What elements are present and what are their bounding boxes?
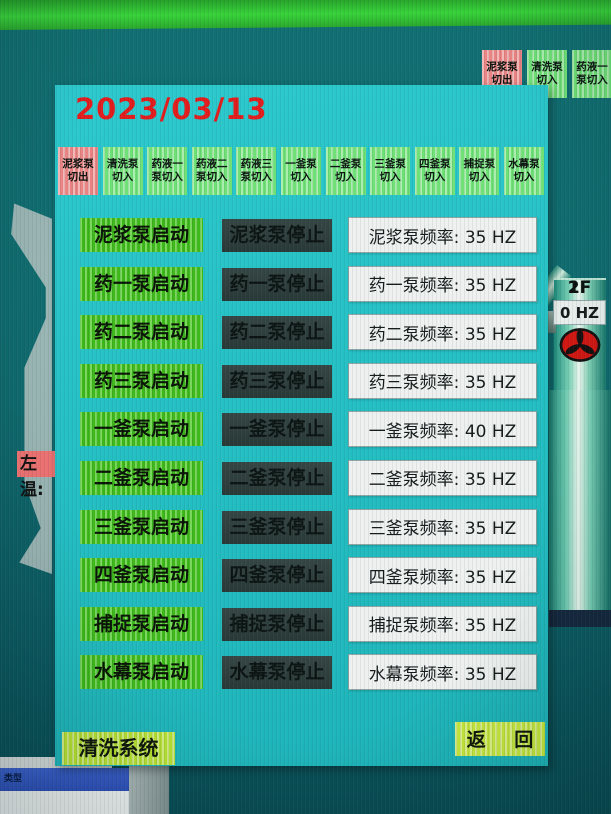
pump-stop-button[interactable]: 泥浆泵停止 xyxy=(222,219,332,252)
back-button[interactable]: 返 回 xyxy=(455,722,545,756)
pump-frequency-display: 四釜泵频率: 35 HZ xyxy=(348,557,537,593)
pump-stop-button[interactable]: 二釜泵停止 xyxy=(222,462,332,495)
pump-row: 捕捉泵启动 捕捉泵停止 捕捉泵频率: 35 HZ xyxy=(55,600,548,649)
pump-frequency-display: 捕捉泵频率: 35 HZ xyxy=(348,606,537,642)
pump-stop-button[interactable]: 水幕泵停止 xyxy=(222,656,332,689)
fan-unit: 2F 0 HZ xyxy=(548,278,611,363)
fan-floor-label: 2F xyxy=(568,278,591,298)
pump-frequency-display: 药三泵频率: 35 HZ xyxy=(348,363,537,399)
pump-switch-tab[interactable]: 四釜泵 切入 xyxy=(415,147,455,195)
pump-switch-tab[interactable]: 捕捉泵 切入 xyxy=(459,147,499,195)
pump-switch-tab[interactable]: 药液二 泵切入 xyxy=(192,147,232,195)
pump-stop-button[interactable]: 药一泵停止 xyxy=(222,268,332,301)
pump-stop-button[interactable]: 三釜泵停止 xyxy=(222,511,332,544)
fan-frequency-display: 0 HZ xyxy=(553,300,606,325)
exhaust-duct: 1F 0 HZ 2F 0 HZ xyxy=(548,278,611,628)
pump-stop-button[interactable]: 四釜泵停止 xyxy=(222,559,332,592)
pump-switch-tab[interactable]: 一釜泵 切入 xyxy=(281,147,321,195)
tab-label: 四釜泵 切入 xyxy=(419,158,451,183)
tab-label: 捕捉泵 切入 xyxy=(464,158,496,183)
pump-row: 二釜泵启动 二釜泵停止 二釜泵频率: 35 HZ xyxy=(55,454,548,503)
pump-stop-button[interactable]: 一釜泵停止 xyxy=(222,413,332,446)
pump-frequency-display: 药一泵频率: 35 HZ xyxy=(348,266,537,302)
pump-frequency-display: 泥浆泵频率: 35 HZ xyxy=(348,217,537,253)
pump-start-button[interactable]: 药三泵启动 xyxy=(80,364,203,398)
background-gray-band xyxy=(129,765,169,814)
tab-label: 二釜泵 切入 xyxy=(330,158,362,183)
tab-label: 药液二 泵切入 xyxy=(196,158,228,183)
pump-switch-tab[interactable]: 药液一 泵切入 xyxy=(147,147,187,195)
pump-control-panel: 2023/03/13 泥浆泵 切出 清洗泵 切入 药液一 泵切入 药液二 泵切入… xyxy=(55,85,548,766)
pump-start-button[interactable]: 四釜泵启动 xyxy=(80,558,203,592)
hmi-screen: 泥浆泵 切出 清洗泵 切入 药液一 泵切入 左温: 类型 1F 0 HZ xyxy=(0,0,611,814)
pump-frequency-display: 水幕泵频率: 35 HZ xyxy=(348,654,537,690)
pump-frequency-display: 药二泵频率: 35 HZ xyxy=(348,314,537,350)
pump-row: 药二泵启动 药二泵停止 药二泵频率: 35 HZ xyxy=(55,308,548,357)
pump-row: 三釜泵启动 三釜泵停止 三釜泵频率: 35 HZ xyxy=(55,503,548,552)
pump-switch-tab[interactable]: 清洗泵 切入 xyxy=(103,147,143,195)
pump-switch-tab[interactable]: 药液三 泵切入 xyxy=(236,147,276,195)
pump-stop-button[interactable]: 药三泵停止 xyxy=(222,365,332,398)
pump-row: 一釜泵启动 一釜泵停止 一釜泵频率: 40 HZ xyxy=(55,405,548,454)
date-display: 2023/03/13 xyxy=(75,92,268,126)
tab-label: 清洗泵 切入 xyxy=(107,158,139,183)
dialog-body xyxy=(0,791,129,814)
tab-label: 药液一 泵切入 xyxy=(576,61,608,86)
tab-label: 清洗泵 切入 xyxy=(531,61,563,86)
pump-frequency-display: 三釜泵频率: 35 HZ xyxy=(348,509,537,545)
tab-label: 一釜泵 切入 xyxy=(285,158,317,183)
pump-start-button[interactable]: 捕捉泵启动 xyxy=(80,607,203,641)
left-temp-label: 左温: xyxy=(17,451,59,477)
pump-stop-button[interactable]: 药二泵停止 xyxy=(222,316,332,349)
pump-frequency-display: 二釜泵频率: 35 HZ xyxy=(348,460,537,496)
pump-start-button[interactable]: 药一泵启动 xyxy=(80,267,203,301)
duct-lower-section xyxy=(549,390,611,612)
pump-row: 药三泵启动 药三泵停止 药三泵频率: 35 HZ xyxy=(55,357,548,406)
pump-row-list: 泥浆泵启动 泥浆泵停止 泥浆泵频率: 35 HZ 药一泵启动 药一泵停止 药一泵… xyxy=(55,211,548,697)
duct-base-band xyxy=(549,610,611,627)
dialog-title-bar: 类型 xyxy=(0,768,138,791)
pump-start-button[interactable]: 二釜泵启动 xyxy=(80,461,203,495)
pump-start-button[interactable]: 水幕泵启动 xyxy=(80,655,203,689)
pump-switch-tab-row: 泥浆泵 切出 清洗泵 切入 药液一 泵切入 药液二 泵切入 药液三 泵切入 一釜… xyxy=(58,147,544,195)
system-title-label: 清洗系统 xyxy=(62,732,175,765)
pump-switch-tab[interactable]: 三釜泵 切入 xyxy=(370,147,410,195)
pump-start-button[interactable]: 一釜泵启动 xyxy=(80,412,203,446)
tab-label: 泥浆泵 切出 xyxy=(62,158,94,183)
pump-start-button[interactable]: 药二泵启动 xyxy=(80,315,203,349)
tab-label: 药液一 泵切入 xyxy=(151,158,183,183)
pump-frequency-display: 一釜泵频率: 40 HZ xyxy=(348,411,537,447)
tab-label: 水幕泵 切入 xyxy=(508,158,540,183)
pump-switch-tab[interactable]: 二釜泵 切入 xyxy=(326,147,366,195)
pump-start-button[interactable]: 泥浆泵启动 xyxy=(80,218,203,252)
pump-switch-tab[interactable]: 水幕泵 切入 xyxy=(504,147,544,195)
tab-label: 药液三 泵切入 xyxy=(241,158,273,183)
pump-row: 水幕泵启动 水幕泵停止 水幕泵频率: 35 HZ xyxy=(55,648,548,697)
pump-row: 药一泵启动 药一泵停止 药一泵频率: 35 HZ xyxy=(55,260,548,309)
equipment-silhouette xyxy=(5,192,56,574)
pump-stop-button[interactable]: 捕捉泵停止 xyxy=(222,608,332,641)
top-green-strip xyxy=(0,0,611,30)
pump-row: 四釜泵启动 四釜泵停止 四釜泵频率: 35 HZ xyxy=(55,551,548,600)
pump-start-button[interactable]: 三釜泵启动 xyxy=(80,510,203,544)
background-pump-switch-tab[interactable]: 药液一 泵切入 xyxy=(572,50,611,98)
pump-row: 泥浆泵启动 泥浆泵停止 泥浆泵频率: 35 HZ xyxy=(55,211,548,260)
fan-icon xyxy=(558,327,602,363)
pump-switch-tab[interactable]: 泥浆泵 切出 xyxy=(58,147,98,195)
tab-label: 泥浆泵 切出 xyxy=(486,61,518,86)
tab-label: 三釜泵 切入 xyxy=(374,158,406,183)
